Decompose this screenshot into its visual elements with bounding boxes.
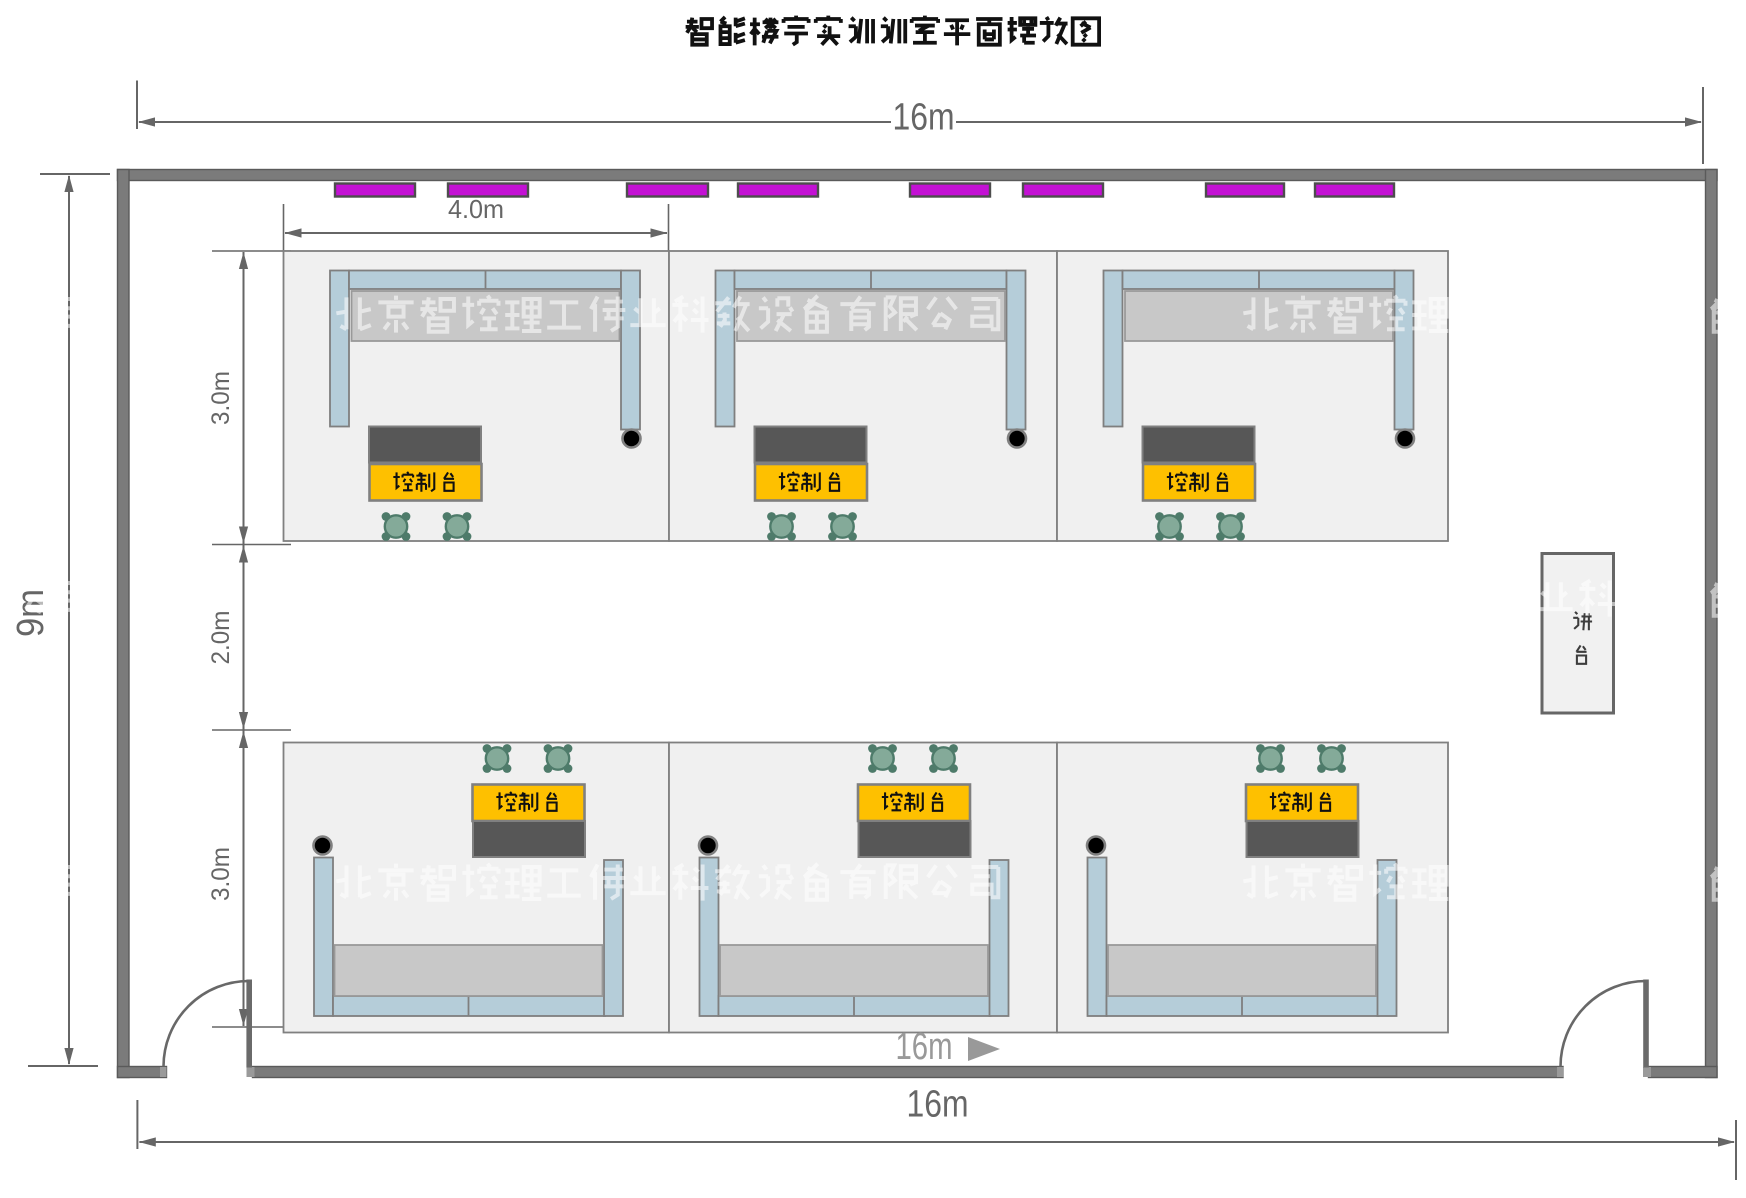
svg-text:2.0m: 2.0m [207, 611, 235, 665]
svg-text:3.0m: 3.0m [207, 371, 235, 425]
svg-text:9m: 9m [10, 589, 52, 637]
svg-text:16m: 16m [896, 1026, 953, 1068]
svg-text:4.0m: 4.0m [448, 194, 504, 224]
svg-text:3.0m: 3.0m [207, 847, 235, 901]
svg-text:16m: 16m [893, 97, 955, 139]
svg-text:16m: 16m [907, 1084, 969, 1126]
